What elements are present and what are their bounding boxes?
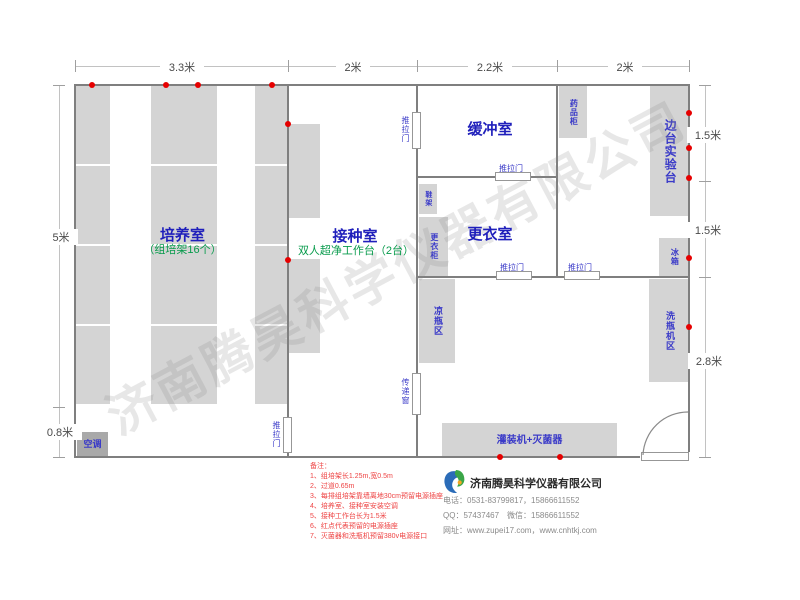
dim-tick bbox=[288, 60, 289, 72]
dim-tick bbox=[53, 85, 65, 86]
note-item: 1、组培架长1.25m,宽0.5m bbox=[310, 472, 443, 482]
dimension-label-top-2: 2米 bbox=[336, 59, 370, 75]
dim-tick bbox=[75, 60, 76, 72]
note-item: 3、每排组培架靠墙离地30cm预留电源插座 bbox=[310, 492, 443, 502]
pass-window bbox=[412, 373, 421, 415]
room-sublabel-inoculation: 双人超净工作台（2台） bbox=[296, 242, 416, 258]
note-item: 6、红点代表预留的电源插座 bbox=[310, 522, 443, 532]
company-phone: 电话：0531-83799817，15866611552 bbox=[443, 495, 579, 506]
wall-cultivation-inoculation bbox=[287, 84, 289, 458]
note-item: 2、过道0.65m bbox=[310, 482, 443, 492]
pass-window-label: 传递窗 bbox=[400, 378, 411, 405]
wall-changing-bottom bbox=[416, 276, 690, 278]
dimension-label-top-3: 2.2米 bbox=[468, 59, 512, 75]
dimension-label-right-2: 1.5米 bbox=[687, 222, 729, 238]
power-outlet-dot bbox=[497, 454, 503, 460]
dim-tick bbox=[699, 181, 711, 182]
room-sublabel-cultivation: （组培架16个） bbox=[120, 241, 245, 257]
dimension-label-top-4: 2米 bbox=[608, 59, 642, 75]
sliding-door-corridor-bottom-label: 推拉门 bbox=[568, 262, 592, 273]
power-outlet-dot bbox=[686, 255, 692, 261]
power-outlet-dot bbox=[686, 324, 692, 330]
note-item: 4、培养室、接种室安装空调 bbox=[310, 502, 443, 512]
sliding-door-buffer-left bbox=[412, 112, 421, 149]
sliding-door-buffer-left-label: 推拉门 bbox=[400, 116, 411, 143]
wall-changing-corridor bbox=[556, 84, 558, 278]
dimension-label-right-3: 2.8米 bbox=[688, 353, 730, 369]
power-outlet-dot bbox=[686, 175, 692, 181]
dim-tick bbox=[699, 277, 711, 278]
dim-tick bbox=[699, 85, 711, 86]
sliding-door-cultivation bbox=[283, 417, 292, 453]
power-outlet-dot bbox=[195, 82, 201, 88]
floor-plan: 济南腾昊科学仪器有限公司 3.3米 2米 2.2米 2米 5米 0.8米 1.5… bbox=[0, 0, 800, 600]
dimension-label-left-2: 0.8米 bbox=[38, 424, 82, 440]
company-logo-icon bbox=[441, 469, 467, 496]
dim-tick bbox=[53, 457, 65, 458]
dim-tick bbox=[557, 60, 558, 72]
note-item: 5、接种工作台长为1.5米 bbox=[310, 512, 443, 522]
dim-tick bbox=[699, 457, 711, 458]
notes-title: 备注： bbox=[310, 462, 443, 472]
dim-tick bbox=[689, 60, 690, 72]
power-outlet-dot bbox=[163, 82, 169, 88]
power-outlet-dot bbox=[686, 110, 692, 116]
sliding-door-cultivation-label: 推拉门 bbox=[271, 421, 282, 448]
power-outlet-dot bbox=[686, 145, 692, 151]
sliding-door-buffer-changing-label: 推拉门 bbox=[499, 163, 523, 174]
company-qq: QQ：57437467 微信：15866611552 bbox=[443, 510, 579, 521]
dim-tick bbox=[417, 60, 418, 72]
note-item: 7、灭菌器和洗瓶机预留380v电源接口 bbox=[310, 532, 443, 542]
power-outlet-dot bbox=[269, 82, 275, 88]
power-outlet-dot bbox=[557, 454, 563, 460]
entry-door-arc bbox=[640, 407, 692, 457]
wall-buffer-changing bbox=[416, 176, 558, 178]
dim-tick bbox=[53, 407, 65, 408]
company-website: 网址：www.zupei17.com，www.cnhtkj.com bbox=[443, 525, 597, 536]
room-label-changing: 更衣室 bbox=[440, 223, 540, 244]
power-outlet-dot bbox=[89, 82, 95, 88]
power-outlet-dot bbox=[285, 257, 291, 263]
dimension-label-left-1: 5米 bbox=[44, 229, 78, 245]
room-label-buffer: 缓冲室 bbox=[440, 118, 540, 139]
sliding-door-changing-bottom-label: 推拉门 bbox=[500, 262, 524, 273]
dimension-line-left bbox=[59, 85, 60, 458]
company-name: 济南腾昊科学仪器有限公司 bbox=[470, 475, 602, 491]
power-outlet-dot bbox=[285, 121, 291, 127]
dimension-label-right-1: 1.5米 bbox=[687, 127, 729, 143]
notes-block: 备注： 1、组培架长1.25m,宽0.5m 2、过道0.65m 3、每排组培架靠… bbox=[310, 462, 443, 542]
dimension-label-top-1: 3.3米 bbox=[160, 59, 204, 75]
